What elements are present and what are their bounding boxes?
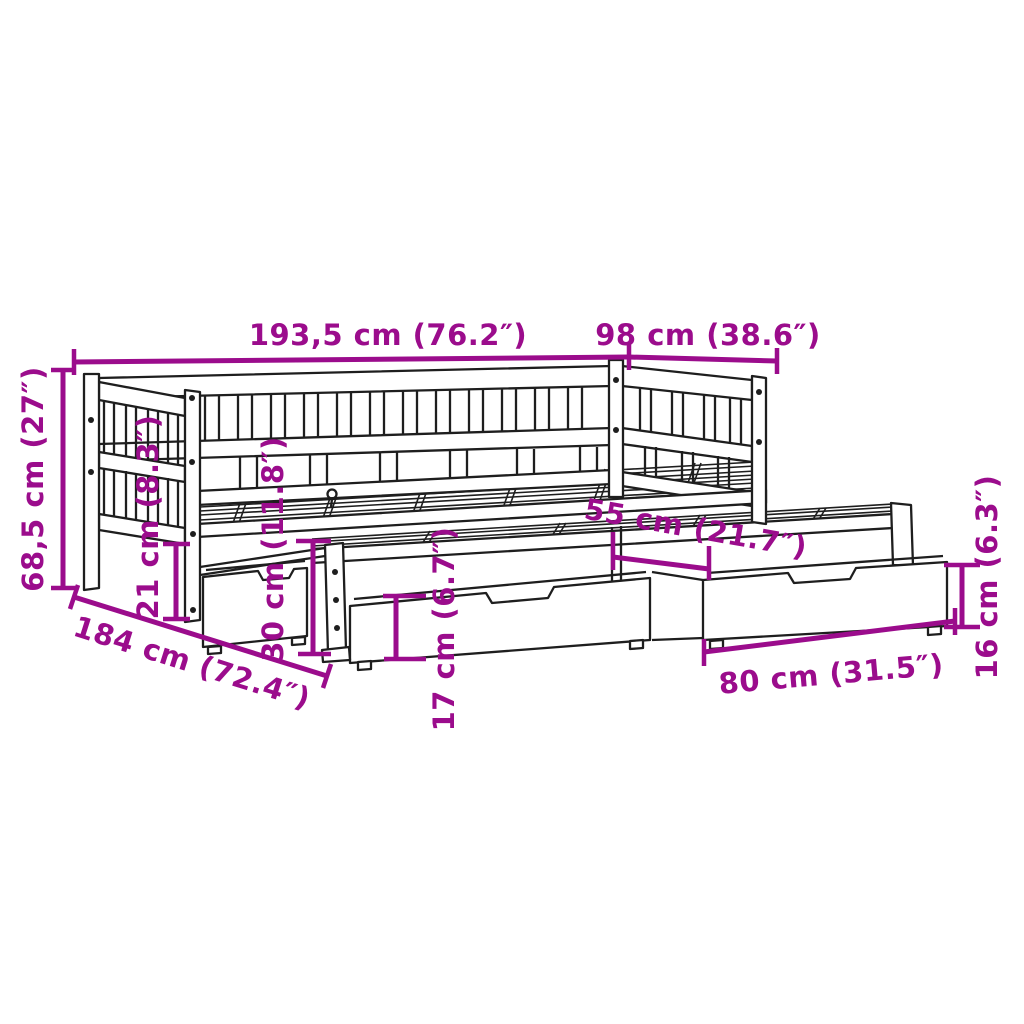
dim-total-length-label: 193,5 cm (76.2″) — [249, 318, 527, 352]
dim-total-height-label: 68,5 cm (27″) — [16, 366, 50, 591]
dim-drawer-height: 16 cm (6.3″) — [944, 475, 1004, 680]
dim-drawer-height-label: 16 cm (6.3″) — [970, 475, 1004, 680]
daybed-line-art — [84, 360, 947, 670]
dim-under-bed-clearance-label: 21 cm (8.3″) — [131, 415, 165, 620]
back-rail-assembly — [99, 366, 612, 505]
daybed-diagram-canvas: 193,5 cm (76.2″) 98 cm (38.6″) 68,5 cm (… — [0, 0, 1024, 1024]
dim-total-height: 68,5 cm (27″) — [16, 366, 76, 591]
dim-drawer-length-label: 80 cm (31.5″) — [717, 647, 945, 701]
dim-total-depth-label: 98 cm (38.6″) — [595, 318, 820, 352]
product-dimension-diagram: 193,5 cm (76.2″) 98 cm (38.6″) 68,5 cm (… — [0, 0, 1024, 1024]
dim-drawer-front-height-label: 17 cm (6.7″) — [427, 527, 461, 732]
dim-trundle-height-label: 30 cm (11.8″) — [256, 436, 290, 661]
